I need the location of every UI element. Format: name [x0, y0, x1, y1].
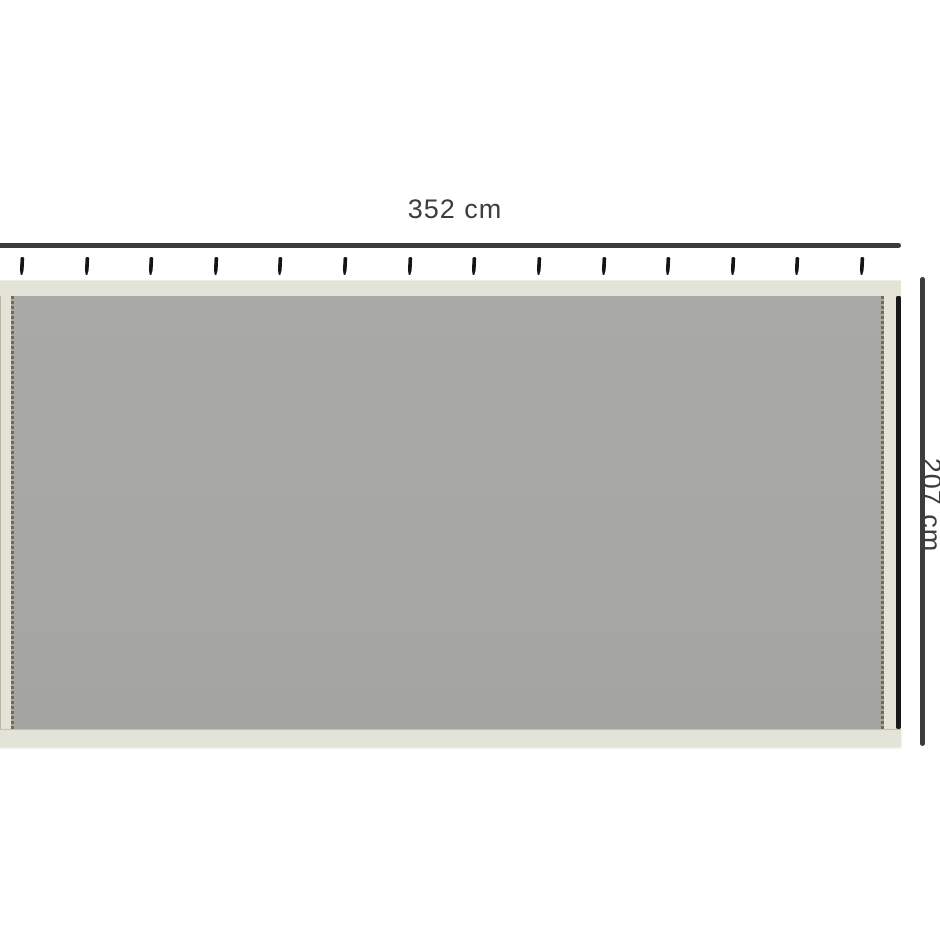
width-dimension-label: 352 cm: [350, 194, 560, 225]
panel-right-edge-stripe: [896, 296, 901, 729]
curtain-hook-icon: [795, 257, 800, 275]
curtain-hook-icon: [278, 257, 283, 275]
curtain-hook-icon: [537, 257, 542, 275]
hooks-row: [0, 257, 901, 279]
curtain-hook-icon: [214, 257, 219, 275]
panel-top-trim: [0, 280, 901, 297]
height-dimension-label: 207 cm: [916, 458, 940, 553]
product-dimension-diagram: 352 cm 207 cm: [0, 0, 940, 940]
curtain-hook-icon: [343, 257, 348, 275]
curtain-panel: [0, 280, 901, 746]
curtain-hook-icon: [472, 257, 477, 275]
curtain-hook-icon: [408, 257, 413, 275]
panel-bottom-trim: [0, 729, 901, 747]
curtain-hook-icon: [860, 257, 865, 275]
curtain-hook-icon: [666, 257, 671, 275]
curtain-hook-icon: [85, 257, 90, 275]
curtain-hook-icon: [149, 257, 154, 275]
curtain-hook-icon: [602, 257, 607, 275]
panel-fabric: [14, 296, 881, 729]
panel-right-trim: [884, 296, 896, 729]
curtain-hook-icon: [731, 257, 736, 275]
width-dimension-line: [0, 243, 901, 248]
curtain-hook-icon: [20, 257, 25, 275]
